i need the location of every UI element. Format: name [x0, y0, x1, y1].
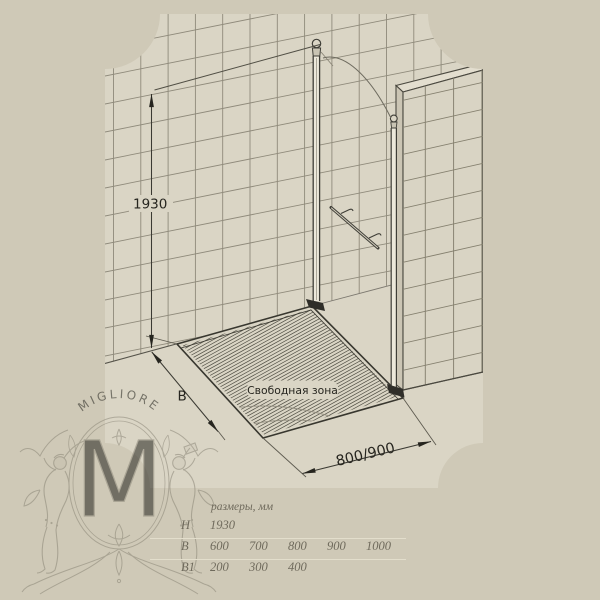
- size-table: размеры, мм H1930B6007008009001000B12003…: [150, 501, 406, 581]
- depth-dimension-label: B: [178, 389, 187, 405]
- table-row: H1930: [150, 518, 406, 539]
- row-value: 700: [249, 539, 288, 554]
- side-wall: [396, 55, 486, 400]
- row-value: 1000: [366, 539, 405, 554]
- row-value: 400: [288, 560, 327, 575]
- shower-spec-sheet: Свободная зона: [0, 0, 600, 600]
- row-label: B1: [181, 560, 210, 575]
- row-value: 600: [210, 539, 249, 554]
- free-zone-label: Свободная зона: [247, 384, 338, 397]
- row-value: 200: [210, 560, 249, 575]
- row-label: H: [181, 518, 210, 533]
- row-value: 800: [288, 539, 327, 554]
- size-table-rows: H1930B6007008009001000B1200300400: [150, 518, 406, 581]
- row-value: 300: [249, 560, 288, 575]
- row-value: 1930: [210, 518, 249, 533]
- row-label: B: [181, 539, 210, 554]
- size-table-header: размеры, мм: [211, 501, 406, 518]
- table-row: B6007008009001000: [150, 539, 406, 560]
- row-value: 900: [327, 539, 366, 554]
- table-row: B1200300400: [150, 560, 406, 581]
- height-dimension-label: 1930: [133, 197, 167, 213]
